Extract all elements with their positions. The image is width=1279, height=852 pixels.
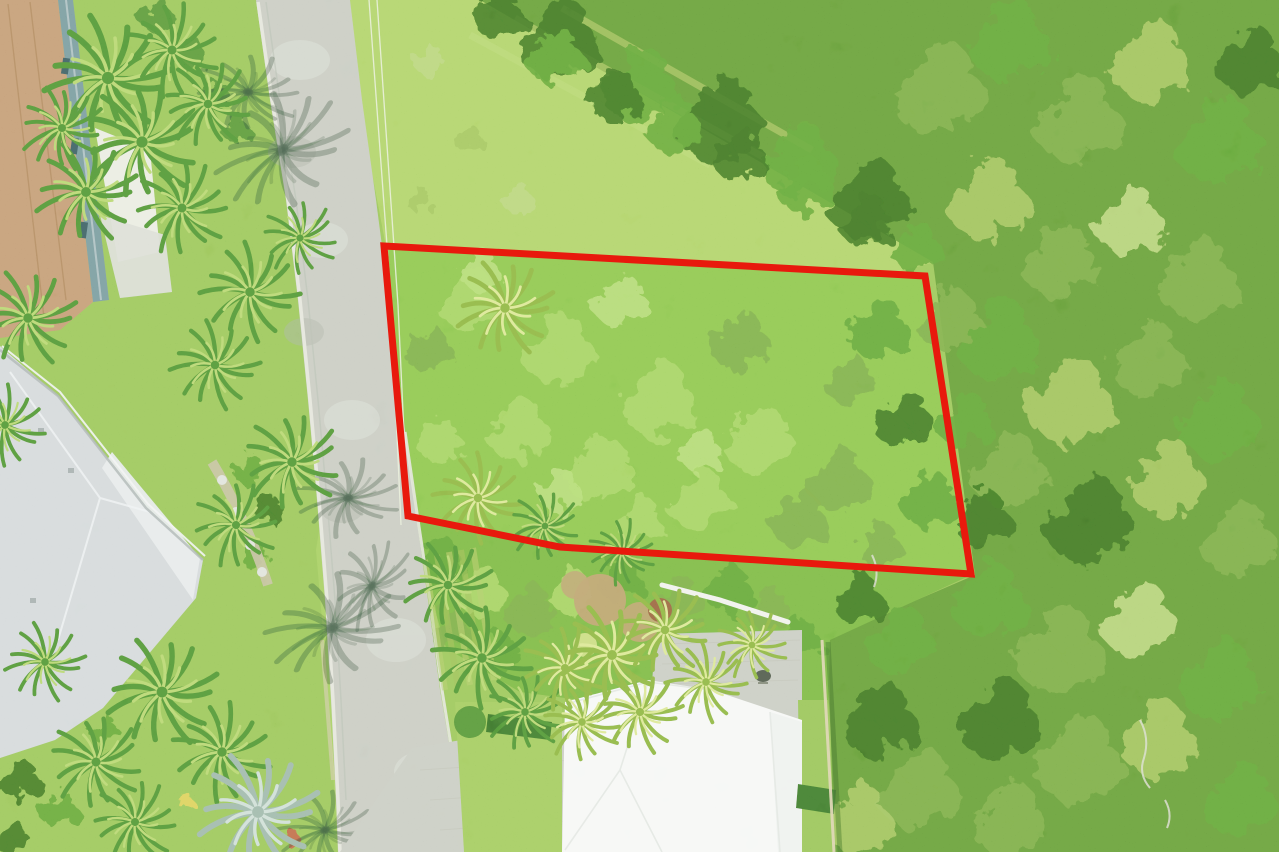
aerial-photo-canvas: Aerial drone photo of a vacant residenti… [0, 0, 1279, 852]
grain-fine-layer [0, 0, 1279, 852]
aerial-photo: Aerial drone photo of a vacant residenti… [0, 0, 1279, 852]
photo-grain [0, 0, 1279, 852]
